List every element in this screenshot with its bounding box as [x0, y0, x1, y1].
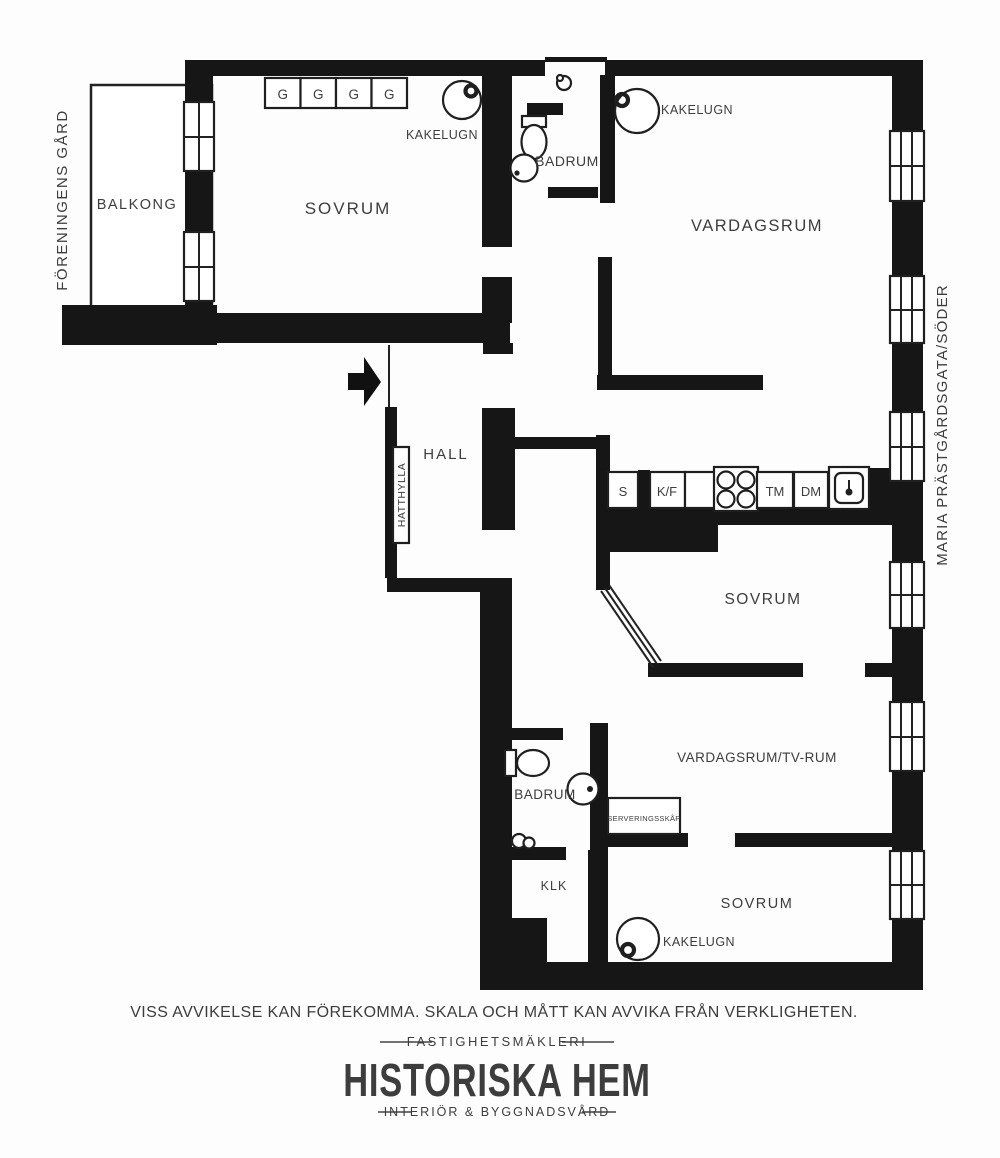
disclaimer-text: VISS AVVIKELSE KAN FÖREKOMMA. SKALA OCH …: [130, 1002, 858, 1021]
kakelugn-label: KAKELUGN: [661, 103, 733, 117]
wall-segment: [598, 257, 612, 377]
room-label-bedroom-top: SOVRUM: [305, 199, 392, 218]
walls: [62, 57, 923, 990]
wall-segment: [892, 342, 923, 413]
window-icon: [890, 412, 924, 481]
wall-segment: [648, 663, 803, 677]
balcony-door-window-icon: [184, 102, 214, 171]
wall-segment: [185, 60, 545, 76]
room-label-bathroom-top: BADRUM: [535, 153, 599, 169]
wall-segment: [387, 578, 483, 592]
wall-segment: [508, 847, 566, 860]
logo-tagline: FASTIGHETSMÄKLERI: [407, 1034, 587, 1049]
wall-segment: [608, 507, 718, 552]
wall-segment: [483, 343, 513, 354]
room-label-bathroom-lower: BADRUM: [514, 787, 576, 802]
room-label-tv-room: VARDAGSRUM/TV-RUM: [677, 750, 837, 765]
wall-segment: [597, 375, 763, 390]
window-icon: [890, 562, 924, 628]
wall-segment: [482, 408, 515, 530]
logo-subtitle: INTERIÖR & BYGGNADSVÅRD: [384, 1104, 611, 1119]
wall-segment: [588, 850, 608, 967]
kakelugn-icon: [617, 918, 659, 960]
room-label-closet: KLK: [541, 879, 568, 893]
wall-segment: [892, 200, 923, 277]
wall-segment: [185, 170, 213, 233]
kitchen-unit-label-dishwasher: DM: [801, 484, 821, 499]
sink-icon: [511, 155, 538, 182]
kitchen-unit-label-fridge: K/F: [657, 484, 677, 499]
wardrobe-label: G: [348, 87, 359, 102]
window-icon: [890, 276, 924, 343]
wall-segment: [545, 57, 607, 62]
serving-cabinet-label: SERVERINGSSKÅP: [607, 814, 680, 823]
wall-segment: [892, 627, 923, 703]
room-label-bedroom-mid: SOVRUM: [724, 591, 801, 608]
kakelugn-icon: [443, 81, 481, 119]
room-label-livingroom: VARDAGSRUM: [691, 217, 823, 235]
floor-drain-icon: [512, 834, 535, 849]
cabinet-unit: [685, 472, 715, 508]
wall-segment: [868, 468, 892, 510]
diagonal-door-icon: [601, 585, 661, 667]
wall-segment: [638, 470, 650, 510]
kakelugn-icon: [615, 89, 659, 133]
wall-segment: [185, 300, 213, 315]
wall-segment: [548, 187, 598, 198]
wall-segment: [527, 103, 563, 115]
wall-segment: [892, 770, 923, 852]
wall-segment: [892, 76, 923, 132]
wardrobe-label: G: [277, 87, 288, 102]
window-icon: [890, 131, 924, 201]
kitchen-unit-label-pantry: S: [619, 484, 628, 499]
kakelugn-label: KAKELUGN: [406, 128, 478, 142]
room-label-bedroom-bottom: SOVRUM: [721, 896, 794, 912]
wardrobe-label: G: [313, 87, 324, 102]
toilet-icon: [505, 750, 549, 776]
wall-segment: [865, 663, 892, 677]
logo-brand: HISTORISKA HEM: [343, 1054, 650, 1106]
room-label-balcony: BALKONG: [97, 197, 178, 213]
wardrobe-label: G: [384, 87, 395, 102]
window-icon: [890, 851, 924, 919]
kitchen-sink-icon: [829, 467, 869, 509]
wall-segment: [605, 60, 923, 76]
floorplan-image: BALKONG SOVRUM BADRUM VARDAGSRUM HALL SO…: [0, 0, 1000, 1158]
room-label-hall: HALL: [423, 446, 469, 463]
side-label-street: MARIA PRÄSTGÅRDSGATA/SÖDER: [933, 284, 951, 566]
stove-burners-icon: [714, 467, 758, 511]
side-label-courtyard: FÖRENINGENS GÅRD: [53, 109, 71, 291]
kakelugn-label: KAKELUGN: [663, 935, 735, 949]
kitchen-unit-label-washer: TM: [766, 484, 785, 499]
wall-segment: [505, 918, 547, 967]
window-icon: [890, 702, 924, 771]
wall-segment: [735, 833, 892, 847]
wall-segment: [185, 60, 213, 103]
wall-segment: [508, 728, 563, 740]
entrance-arrow-icon: [348, 357, 381, 406]
wall-segment: [482, 277, 512, 323]
floorplan-svg: BALKONG SOVRUM BADRUM VARDAGSRUM HALL SO…: [0, 0, 1000, 1158]
toilet-paper-icon: [557, 75, 571, 90]
wall-segment: [600, 75, 615, 203]
wall-segment: [515, 437, 600, 449]
wall-segment: [482, 75, 512, 247]
hat-shelf-label: HATTHYLLA: [396, 463, 408, 527]
wall-segment: [596, 435, 610, 590]
window-icon: [184, 232, 214, 301]
logo: FASTIGHETSMÄKLERI HISTORISKA HEM INTERIÖ…: [343, 1034, 650, 1119]
